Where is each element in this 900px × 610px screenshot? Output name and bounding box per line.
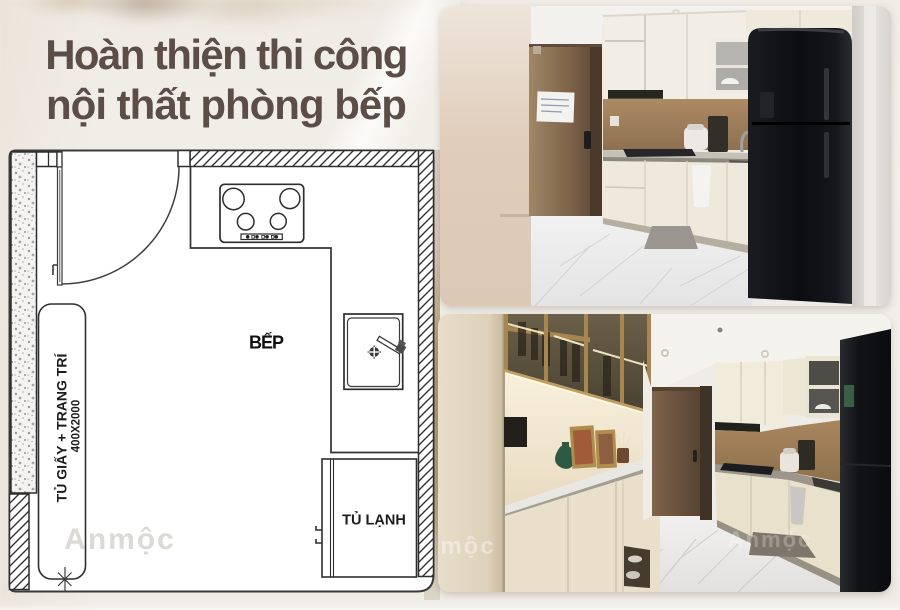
svg-text:mộc: mộc: [440, 533, 495, 560]
svg-text:BẾP: BẾP: [249, 332, 284, 353]
svg-text:TỦ GIẤY + TRANG TRÍ: TỦ GIẤY + TRANG TRÍ: [53, 353, 70, 503]
svg-text:Anmộc: Anmộc: [728, 527, 813, 552]
svg-text:TỦ LẠNH: TỦ LẠNH: [342, 511, 406, 529]
svg-text:400X2000: 400X2000: [71, 400, 83, 452]
svg-text:Anmộc: Anmộc: [64, 523, 176, 556]
